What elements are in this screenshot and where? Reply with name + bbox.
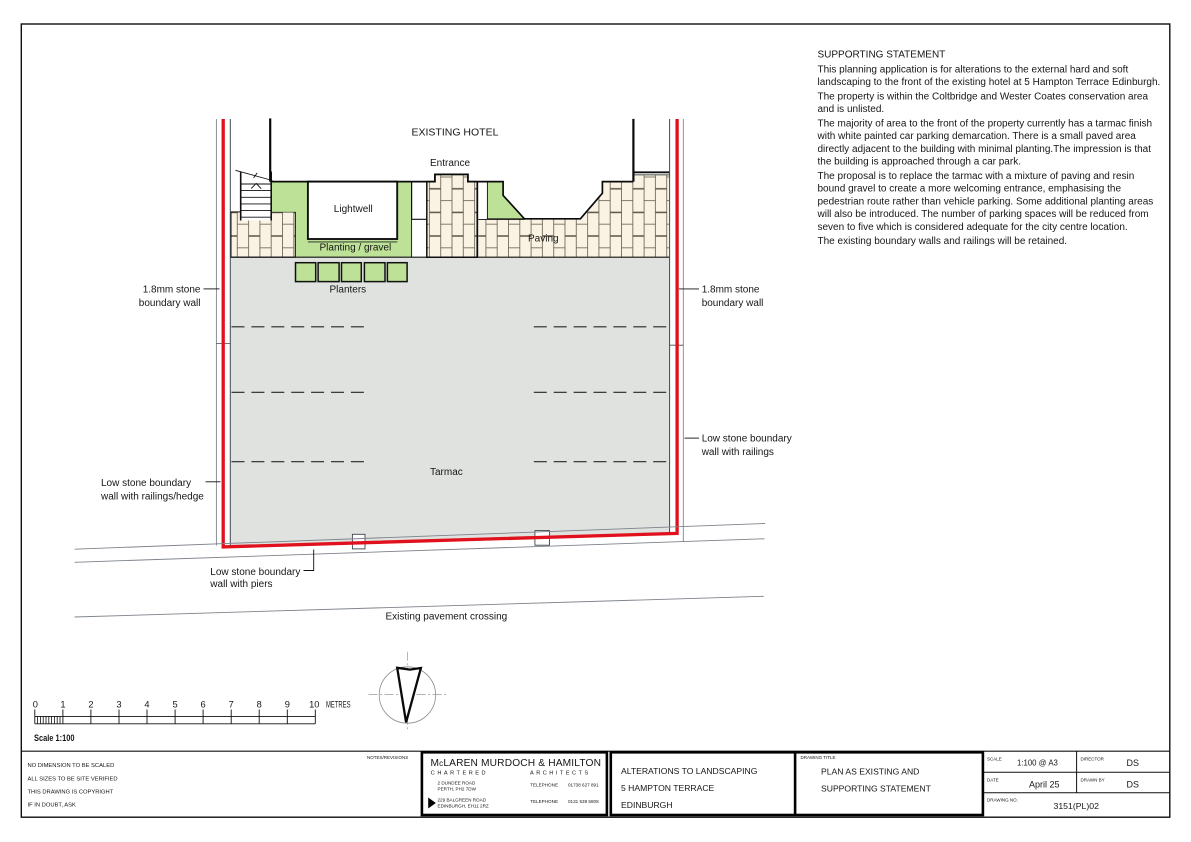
svg-text:0131 539 5808: 0131 539 5808 — [568, 799, 599, 804]
svg-text:Planting / gravel: Planting / gravel — [320, 242, 392, 253]
svg-text:2 DUNDEE ROAD: 2 DUNDEE ROAD — [438, 781, 476, 786]
svg-text:METRES: METRES — [326, 700, 351, 710]
svg-text:SUPPORTING STATEMENT: SUPPORTING STATEMENT — [821, 783, 932, 793]
svg-text:DS: DS — [1127, 758, 1140, 768]
svg-text:wall with piers: wall with piers — [209, 579, 272, 590]
svg-text:Lightwell: Lightwell — [334, 204, 373, 215]
svg-text:Paving: Paving — [528, 233, 559, 244]
svg-text:6: 6 — [201, 700, 206, 710]
svg-text:and is unlisted.: and is unlisted. — [818, 104, 885, 115]
svg-text:4: 4 — [144, 700, 149, 710]
svg-text:3: 3 — [116, 700, 121, 710]
svg-text:boundary wall: boundary wall — [702, 298, 764, 309]
svg-text:NO DIMENSION TO BE SCALED: NO DIMENSION TO BE SCALED — [28, 763, 115, 769]
svg-text:7: 7 — [229, 700, 234, 710]
svg-text:with white painted car parking: with white painted car parking demarcati… — [817, 131, 1137, 142]
svg-text:The proposal is to replace the: The proposal is to replace the tarmac wi… — [818, 171, 1135, 182]
svg-text:ALL SIZES TO BE SITE VERIFIED: ALL SIZES TO BE SITE VERIFIED — [28, 777, 118, 783]
svg-text:2: 2 — [88, 700, 93, 710]
svg-text:landscaping to the front of th: landscaping to the front of the existing… — [818, 77, 1161, 88]
svg-text:ALTERATIONS TO LANDSCAPING: ALTERATIONS TO LANDSCAPING — [621, 766, 758, 776]
svg-text:boundary wall: boundary wall — [139, 298, 201, 309]
svg-text:pedestrian route rather than v: pedestrian route rather than vehicle par… — [818, 196, 1154, 207]
svg-text:TELEPHONE: TELEPHONE — [530, 783, 558, 788]
svg-text:Planters: Planters — [330, 284, 367, 295]
svg-text:EDINBURGH, EH11 2RZ: EDINBURGH, EH11 2RZ — [438, 804, 489, 809]
svg-text:EXISTING HOTEL: EXISTING HOTEL — [412, 127, 499, 139]
svg-text:5: 5 — [173, 700, 178, 710]
svg-text:SCALE: SCALE — [987, 757, 1002, 762]
svg-text:PERTH, PH2 7DW: PERTH, PH2 7DW — [438, 787, 477, 792]
svg-text:EDINBURGH: EDINBURGH — [621, 800, 673, 810]
svg-text:Entrance: Entrance — [430, 158, 470, 169]
svg-text:0: 0 — [33, 700, 38, 710]
svg-text:1:100 @ A3: 1:100 @ A3 — [1017, 758, 1058, 767]
svg-text:the building is approached thr: the building is approached through a car… — [818, 157, 1021, 168]
svg-text:TELEPHONE: TELEPHONE — [530, 799, 558, 804]
svg-text:The existing boundary walls an: The existing boundary walls and railings… — [818, 236, 1068, 247]
svg-text:April 25: April 25 — [1029, 779, 1060, 789]
svg-text:Low stone boundary: Low stone boundary — [101, 478, 191, 489]
svg-text:SUPPORTING STATEMENT: SUPPORTING STATEMENT — [818, 50, 946, 61]
svg-text:Scale 1:100: Scale 1:100 — [34, 733, 75, 743]
svg-text:directly adjacent to the build: directly adjacent to the building with m… — [818, 144, 1152, 155]
svg-text:bound gravel to create a more: bound gravel to create a more welcoming … — [818, 184, 1122, 195]
svg-text:wall with railings/hedge: wall with railings/hedge — [100, 492, 204, 503]
svg-text:ARCHITECTS: ARCHITECTS — [530, 770, 591, 776]
svg-text:DATE: DATE — [987, 778, 999, 783]
svg-text:CHARTERED: CHARTERED — [431, 770, 488, 776]
svg-text:1: 1 — [60, 700, 65, 710]
svg-text:McLAREN MURDOCH & HAMILTON: McLAREN MURDOCH & HAMILTON — [431, 758, 602, 769]
svg-text:10: 10 — [309, 700, 319, 710]
svg-text:will also be introduced. The n: will also be introduced. The number of p… — [817, 209, 1149, 220]
svg-text:Tarmac: Tarmac — [430, 467, 463, 478]
svg-text:IF IN DOUBT, ASK: IF IN DOUBT, ASK — [28, 803, 76, 809]
svg-text:DRAWING TITLE: DRAWING TITLE — [801, 755, 836, 760]
svg-text:PLAN AS EXISTING AND: PLAN AS EXISTING AND — [821, 766, 919, 776]
svg-text:The property is within the Col: The property is within the Coltbridge an… — [818, 91, 1149, 102]
svg-text:3151(PL)02: 3151(PL)02 — [1054, 801, 1100, 811]
svg-text:1.8mm stone: 1.8mm stone — [143, 284, 201, 295]
svg-text:THIS DRAWING IS COPYRIGHT: THIS DRAWING IS COPYRIGHT — [28, 790, 114, 796]
svg-text:Existing pavement crossing: Existing pavement crossing — [386, 611, 508, 622]
svg-text:Low stone boundary: Low stone boundary — [702, 434, 792, 445]
svg-text:DIRECTOR: DIRECTOR — [1081, 757, 1105, 762]
svg-text:1.8mm stone: 1.8mm stone — [702, 284, 760, 295]
svg-text:This planning application is f: This planning application is for alterat… — [818, 64, 1129, 75]
svg-text:5 HAMPTON TERRACE: 5 HAMPTON TERRACE — [621, 783, 715, 793]
svg-text:229 BALGREEN ROAD: 229 BALGREEN ROAD — [438, 798, 487, 803]
svg-text:The majority of area to the fr: The majority of area to the front of the… — [818, 119, 1153, 130]
svg-text:wall with railings: wall with railings — [701, 447, 774, 458]
svg-text:DS: DS — [1127, 779, 1140, 789]
svg-text:seven to five which is conside: seven to five which is considered adequa… — [818, 222, 1128, 233]
svg-text:9: 9 — [285, 700, 290, 710]
svg-text:8: 8 — [257, 700, 262, 710]
svg-text:DRAWN BY: DRAWN BY — [1081, 778, 1105, 783]
svg-text:01738 627 891: 01738 627 891 — [568, 783, 599, 788]
svg-text:DRAWING NO.: DRAWING NO. — [987, 798, 1018, 803]
svg-text:NOTES/REVISIONS: NOTES/REVISIONS — [367, 755, 408, 760]
svg-text:Low stone boundary: Low stone boundary — [210, 567, 300, 578]
